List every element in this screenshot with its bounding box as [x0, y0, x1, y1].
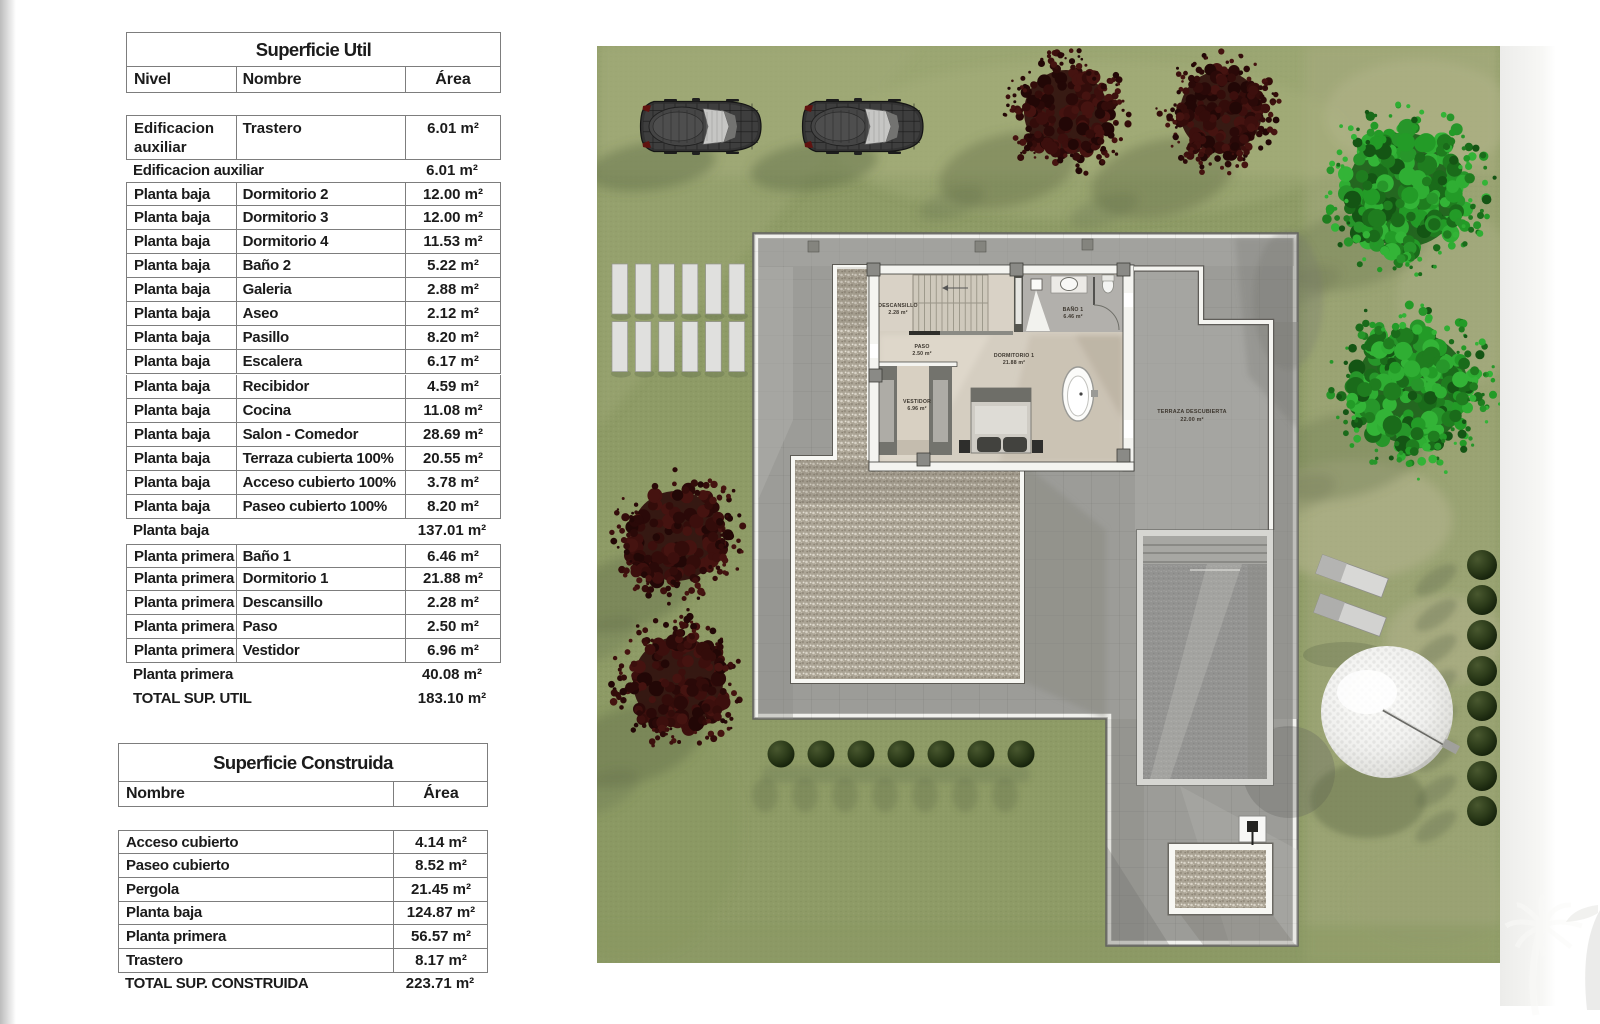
svg-text:DESCANSILLO: DESCANSILLO	[878, 303, 917, 309]
svg-text:21.88 m²: 21.88 m²	[1003, 360, 1025, 366]
svg-text:2.50 m²: 2.50 m²	[912, 351, 931, 357]
svg-text:PASO: PASO	[914, 344, 929, 350]
svg-text:6.46 m²: 6.46 m²	[1063, 314, 1082, 320]
svg-text:DORMITORIO 1: DORMITORIO 1	[994, 353, 1034, 359]
svg-text:VESTIDOR: VESTIDOR	[903, 399, 931, 405]
svg-text:22.00 m²: 22.00 m²	[1180, 417, 1203, 423]
svg-text:BAÑO 1: BAÑO 1	[1063, 306, 1084, 313]
svg-text:6.96 m²: 6.96 m²	[907, 406, 926, 412]
svg-text:TERRAZA DESCUBIERTA: TERRAZA DESCUBIERTA	[1157, 409, 1226, 415]
svg-text:2.28 m²: 2.28 m²	[888, 310, 907, 316]
